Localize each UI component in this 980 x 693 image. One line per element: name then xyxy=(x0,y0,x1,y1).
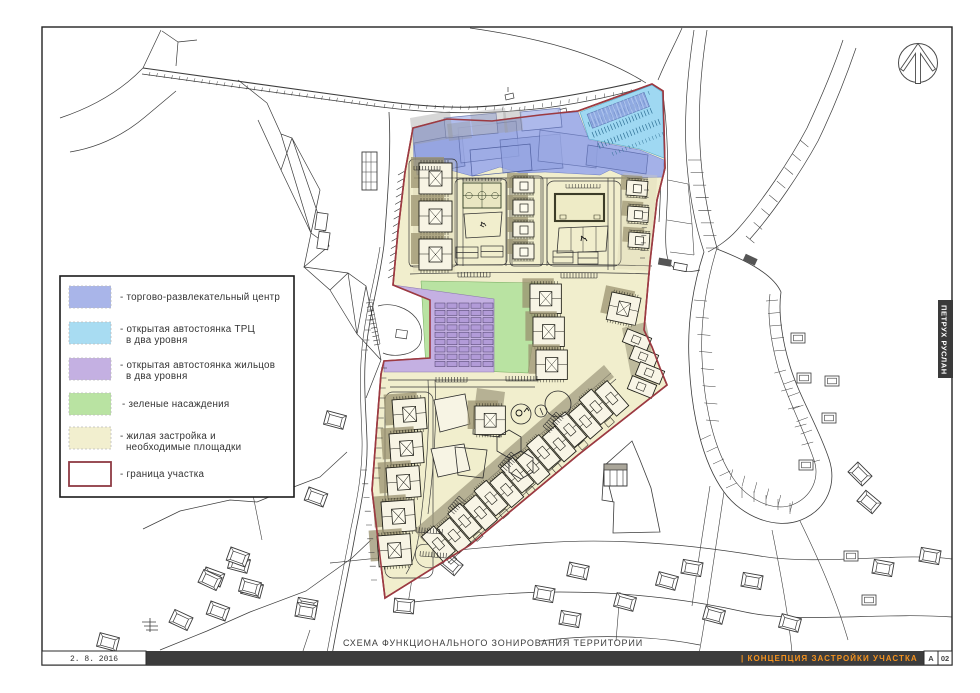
svg-text:в два уровня: в два уровня xyxy=(126,335,188,346)
svg-text:- открытая автостоянка ТРЦ: - открытая автостоянка ТРЦ xyxy=(120,324,255,335)
svg-text:СХЕМА ФУНКЦИОНАЛЬНОГО ЗОНИРОВА: СХЕМА ФУНКЦИОНАЛЬНОГО ЗОНИРОВАНИЯ ТЕРРИТ… xyxy=(343,638,643,648)
svg-text:2. 8. 2016: 2. 8. 2016 xyxy=(70,655,118,664)
svg-text:- открытая автостоянка жильцов: - открытая автостоянка жильцов xyxy=(120,360,275,371)
svg-text:A: A xyxy=(928,654,934,663)
svg-text:02: 02 xyxy=(941,654,949,663)
svg-text:ПЕТРУХ РУСЛАН: ПЕТРУХ РУСЛАН xyxy=(940,305,949,375)
svg-text:- граница участка: - граница участка xyxy=(120,469,204,480)
svg-text:| КОНЦЕПЦИЯ ЗАСТРОЙКИ УЧАСТКА: | КОНЦЕПЦИЯ ЗАСТРОЙКИ УЧАСТКА xyxy=(741,654,918,663)
svg-text:- зеленые насаждения: - зеленые насаждения xyxy=(122,399,229,410)
svg-text:в два уровня: в два уровня xyxy=(126,371,188,382)
svg-text:- торгово-развлекательный цент: - торгово-развлекательный центр xyxy=(120,292,280,303)
svg-text:- жилая застройка и: - жилая застройка и xyxy=(120,431,216,442)
svg-text:необходимые площадки: необходимые площадки xyxy=(126,442,241,453)
